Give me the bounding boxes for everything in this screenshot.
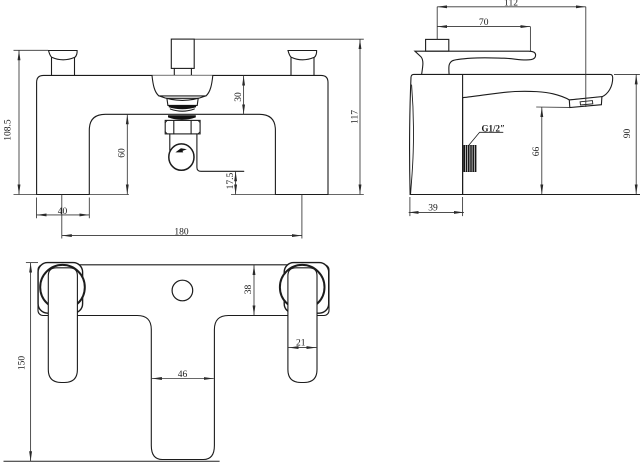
- svg-text:39: 39: [428, 204, 438, 214]
- svg-text:46: 46: [178, 370, 188, 380]
- svg-text:38: 38: [244, 285, 254, 295]
- svg-text:112: 112: [504, 0, 518, 9]
- svg-text:60: 60: [118, 148, 128, 158]
- svg-text:180: 180: [174, 228, 189, 238]
- svg-text:40: 40: [58, 207, 68, 217]
- svg-text:66: 66: [532, 147, 542, 157]
- svg-text:108.5: 108.5: [3, 119, 13, 141]
- svg-text:117: 117: [351, 110, 361, 124]
- svg-text:17.5: 17.5: [226, 172, 236, 189]
- svg-text:21: 21: [296, 339, 306, 349]
- svg-text:G1/2″: G1/2″: [482, 123, 506, 133]
- svg-text:150: 150: [18, 356, 28, 371]
- svg-text:30: 30: [234, 92, 244, 102]
- svg-text:90: 90: [623, 129, 633, 139]
- svg-text:70: 70: [479, 18, 489, 28]
